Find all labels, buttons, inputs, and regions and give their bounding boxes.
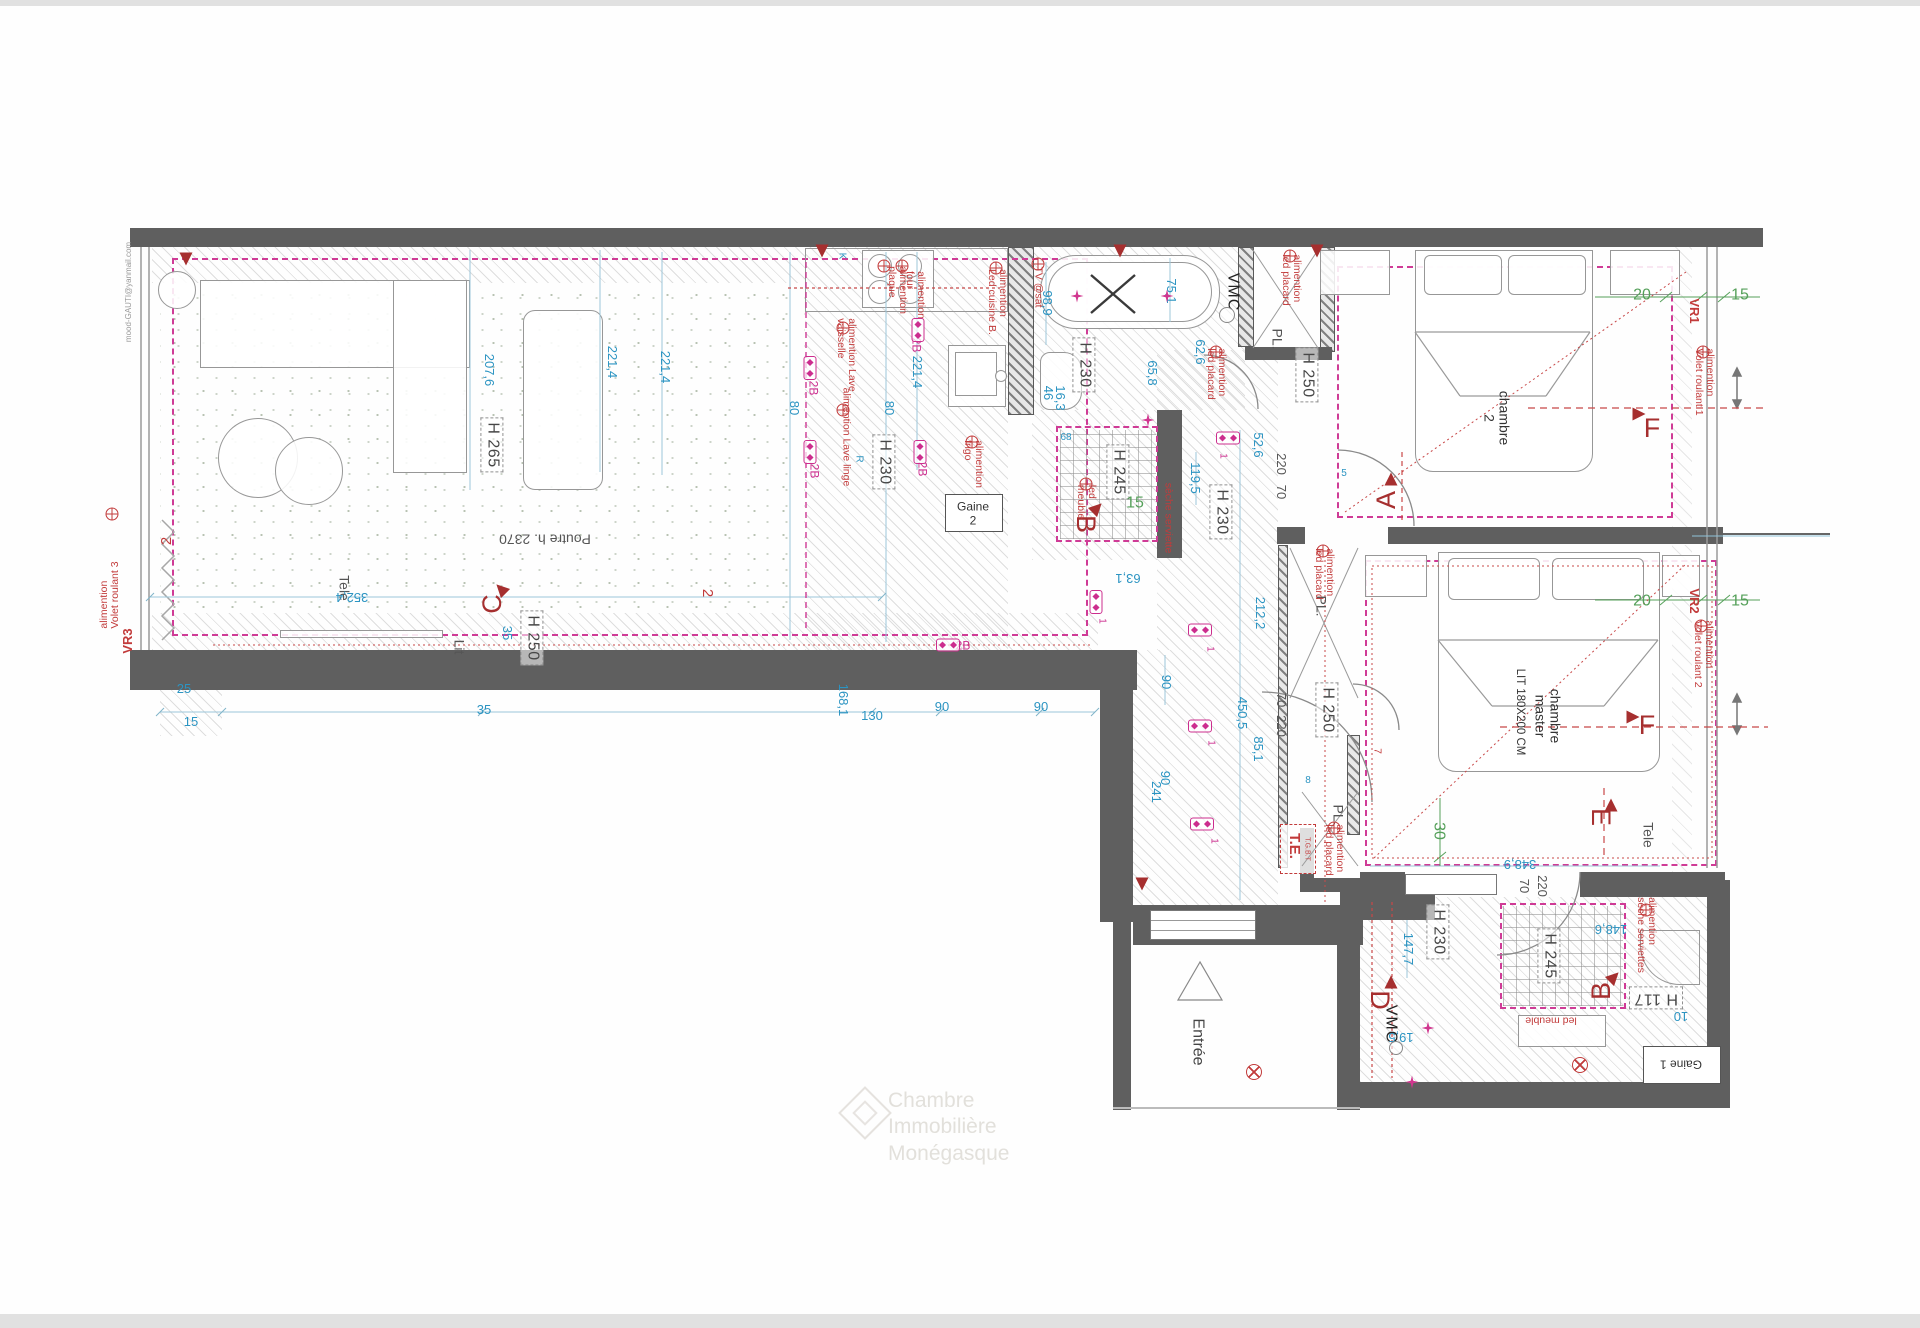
plan-label: 90 bbox=[1159, 675, 1173, 689]
wall-master-bottom-b bbox=[1580, 872, 1725, 897]
power-supply-icon bbox=[837, 404, 850, 417]
socket-icon bbox=[914, 440, 927, 464]
plan-label: 35 bbox=[477, 703, 491, 717]
coffee-table-small bbox=[275, 437, 343, 505]
plan-label: 2 bbox=[970, 515, 977, 528]
plan-label: 80 bbox=[787, 401, 801, 415]
socket-icon bbox=[912, 318, 925, 342]
socket-icon bbox=[1188, 624, 1212, 637]
plan-label: 1 bbox=[1205, 740, 1216, 746]
plan-label: H 230 bbox=[1073, 337, 1096, 392]
plan-label: chambre master bbox=[1533, 689, 1562, 743]
plan-label: alimention Led cuisine B. bbox=[986, 269, 1008, 335]
plan-label: alimention Volet roulant 3 bbox=[99, 561, 121, 628]
socket-icon bbox=[1188, 720, 1212, 733]
power-supply-icon bbox=[990, 262, 1003, 275]
power-supply-icon bbox=[1032, 258, 1045, 271]
corridor-lower-floor bbox=[1133, 650, 1278, 908]
plan-label: 1 bbox=[1204, 646, 1215, 652]
plan-label: 450,5 bbox=[1235, 697, 1249, 730]
side-table bbox=[158, 271, 196, 309]
wall-te-niche-h bbox=[1300, 878, 1362, 892]
plan-label: 15 bbox=[1126, 496, 1144, 513]
nightstand-c2-left bbox=[1320, 250, 1390, 295]
plan-label: 85,1 bbox=[1251, 736, 1265, 761]
kitchen-sink-bowl bbox=[955, 352, 997, 396]
watermark-line1: Chambre bbox=[888, 1088, 1118, 1114]
plan-label: 63,1 bbox=[1115, 571, 1140, 585]
plan-label: 148,6 bbox=[1595, 922, 1628, 936]
plan-label: 221,4 bbox=[605, 346, 619, 379]
plan-label: A bbox=[1372, 491, 1400, 509]
plan-label: H 230 bbox=[1210, 484, 1233, 539]
wall-bedroom-separation-b bbox=[1388, 527, 1723, 544]
plan-label: 1 bbox=[1217, 453, 1228, 459]
wall-bath2-bottom bbox=[1360, 1082, 1730, 1108]
watermark: Chambre Immobilière Monégasque bbox=[888, 1088, 1118, 1167]
plan-label: VR1 bbox=[1687, 298, 1701, 323]
tv-unit bbox=[280, 630, 443, 638]
vmc-outlet-icon bbox=[1219, 307, 1235, 323]
plan-label: alimention Lave linge bbox=[840, 388, 851, 487]
plan-label: R bbox=[853, 455, 864, 462]
plan-label: H 230 bbox=[873, 434, 896, 489]
plan-label: 1 bbox=[1096, 618, 1107, 624]
plan-label: H 250 bbox=[521, 610, 544, 665]
plan-label: 130 bbox=[861, 709, 883, 723]
plan-label: 52,6 bbox=[1251, 432, 1265, 457]
plan-label: 16,3 bbox=[1053, 385, 1067, 410]
plan-label: H 250 bbox=[1316, 682, 1339, 737]
window-arrow-icons bbox=[1733, 368, 1741, 734]
plan-label: VR2 bbox=[1687, 588, 1701, 613]
plan-label: 70 bbox=[1274, 693, 1288, 707]
power-supply-icon bbox=[1080, 478, 1093, 491]
watermark-logo-icon bbox=[838, 1086, 892, 1140]
plan-label: sèche serviette bbox=[1162, 483, 1173, 554]
entree-window bbox=[1150, 910, 1256, 940]
master-bottom-window bbox=[1405, 874, 1497, 895]
wall-closet2-strip bbox=[1347, 735, 1360, 835]
nightstand-m-left bbox=[1365, 555, 1427, 597]
plan-label: 352,4 bbox=[336, 590, 369, 604]
plan-label: LIT 180X200 CM bbox=[1514, 669, 1526, 756]
plan-label: T.G.B.T bbox=[1303, 837, 1310, 861]
plan-label: mood-GAUTI@yanmail.com bbox=[125, 242, 133, 342]
plan-label: 68 bbox=[1060, 433, 1071, 444]
socket-icon bbox=[804, 356, 817, 380]
wall-top bbox=[130, 228, 1763, 247]
plan-label: Gaine bbox=[957, 501, 989, 514]
plan-label: K bbox=[836, 253, 847, 260]
plan-label: 348,9 bbox=[1504, 857, 1537, 871]
plan-label: VMC bbox=[1224, 273, 1241, 312]
plan-label: PL. bbox=[1270, 328, 1285, 349]
plan-label: T.E. bbox=[1286, 833, 1302, 859]
plan-label: 20 bbox=[1633, 594, 1651, 611]
spotlight-icon bbox=[1246, 1064, 1262, 1080]
wall-corridor-left bbox=[1100, 650, 1133, 922]
plan-label: 147,7 bbox=[1401, 933, 1415, 966]
plan-label: 8 bbox=[1305, 776, 1311, 787]
plan-label: 220 bbox=[1535, 875, 1549, 897]
plan-label: H 250 bbox=[1296, 347, 1319, 402]
plan-label: Lit bbox=[452, 640, 467, 655]
watermark-line3: Monégasque bbox=[888, 1141, 1118, 1167]
plan-label: F bbox=[1639, 711, 1656, 739]
plan-label: H 117 bbox=[1629, 987, 1683, 1010]
wall-placard-bottom bbox=[1245, 347, 1332, 360]
socket-icon bbox=[1190, 818, 1214, 831]
plan-label: 90 bbox=[935, 700, 949, 714]
power-supply-icon bbox=[1284, 250, 1297, 263]
power-supply-icon bbox=[106, 508, 119, 521]
plan-label: 10 bbox=[1674, 1009, 1688, 1023]
plan-label: alimention four bbox=[904, 271, 926, 319]
plan-label: chambre 2 bbox=[1482, 391, 1511, 445]
plan-label: 5 bbox=[1341, 469, 1347, 480]
pillow-c2-left bbox=[1424, 255, 1502, 295]
plan-label: 119,5 bbox=[1188, 462, 1202, 494]
power-supply-icon bbox=[1640, 904, 1653, 917]
power-supply-icon bbox=[1695, 620, 1708, 633]
plan-label: 220 bbox=[1274, 715, 1288, 737]
spotlight-icon bbox=[1572, 1057, 1588, 1073]
plan-label: 15 bbox=[1731, 288, 1749, 305]
watermark-line2: Immobilière bbox=[888, 1114, 1118, 1140]
scan-band-bottom bbox=[0, 1314, 1920, 1328]
plan-label: 15 bbox=[1731, 594, 1749, 611]
plan-label: 241 bbox=[1149, 781, 1163, 803]
power-supply-icon bbox=[966, 436, 979, 449]
plan-label: 2B bbox=[808, 464, 821, 479]
plan-label: Entrée bbox=[1189, 1018, 1206, 1065]
plan-label: 65,8 bbox=[1145, 360, 1159, 385]
socket-icon bbox=[1090, 590, 1103, 614]
plan-label: H 230 bbox=[1427, 904, 1450, 959]
console-table bbox=[523, 310, 603, 490]
plan-label: H 245 bbox=[1107, 444, 1130, 499]
wall-entree-right bbox=[1337, 918, 1360, 1110]
wall-bottom-left bbox=[130, 650, 1137, 690]
sink-tap bbox=[995, 370, 1007, 382]
plan-label: VR3 bbox=[121, 628, 135, 653]
plan-label: 1 bbox=[1208, 838, 1219, 844]
power-supply-icon bbox=[1697, 346, 1710, 359]
wall-bedroom-separation-a bbox=[1277, 527, 1305, 544]
power-supply-icon bbox=[878, 260, 891, 273]
power-supply-icon bbox=[896, 260, 909, 273]
socket-icon bbox=[804, 440, 817, 464]
plan-label: 2 bbox=[699, 589, 715, 597]
power-supply-icon bbox=[1328, 822, 1341, 835]
plan-label: F bbox=[1644, 414, 1661, 442]
plan-label: 25 bbox=[177, 682, 191, 696]
plan-label: 207,6 bbox=[482, 354, 496, 387]
plan-label: 35 bbox=[500, 626, 514, 640]
plan-label: alimention Volet roulant 1 bbox=[1693, 348, 1715, 415]
pillow-m-right bbox=[1552, 558, 1644, 600]
wall-entree-left bbox=[1113, 920, 1131, 1110]
pillow-c2-right bbox=[1508, 255, 1586, 295]
plan-label: 212,2 bbox=[1253, 597, 1267, 630]
plan-label: 30 bbox=[1430, 822, 1447, 840]
plan-label: 2 bbox=[159, 537, 175, 545]
plan-label: 20 bbox=[1633, 288, 1651, 305]
bathtub-inner bbox=[1048, 262, 1212, 322]
wall-master-bottom-a bbox=[1360, 872, 1405, 897]
plan-label: 80 bbox=[882, 401, 896, 415]
plan-label: Gaine 1 bbox=[1660, 1058, 1702, 1071]
plan-label: led meuble bbox=[1525, 1014, 1576, 1025]
plan-label: 90 bbox=[1034, 700, 1048, 714]
plan-label: H 265 bbox=[481, 417, 504, 472]
scan-band-top bbox=[0, 0, 1920, 6]
plan-label: 221,4 bbox=[910, 356, 924, 389]
plan-label: 15 bbox=[184, 715, 198, 729]
power-supply-icon bbox=[837, 322, 850, 335]
plan-label: H 245 bbox=[1538, 928, 1561, 983]
plan-label: 75,1 bbox=[1164, 278, 1178, 303]
pillow-m-left bbox=[1448, 558, 1540, 600]
plan-label: 2B bbox=[807, 381, 820, 396]
socket-icon bbox=[1216, 432, 1240, 445]
plan-label: 70 bbox=[1517, 879, 1531, 893]
plan-label: 70 bbox=[1274, 485, 1288, 499]
power-supply-icon bbox=[1317, 545, 1330, 558]
floor-plan-canvas: Chambre Immobilière Monégasque H 265H 23… bbox=[0, 0, 1920, 1328]
socket-icon bbox=[936, 639, 960, 652]
plan-label: 7 bbox=[1371, 748, 1382, 754]
sofa-chaise bbox=[393, 280, 467, 473]
plan-label: Tele bbox=[1641, 822, 1656, 848]
plan-label: 220 bbox=[1274, 453, 1288, 475]
power-supply-icon bbox=[1210, 346, 1223, 359]
plan-label: 221,4 bbox=[658, 351, 672, 384]
plan-label: D bbox=[1366, 990, 1394, 1010]
plan-label: 168,1 bbox=[836, 684, 850, 717]
plan-label: Poutre h. 2370 bbox=[499, 532, 591, 547]
entree-triangle-icon bbox=[1178, 962, 1222, 1000]
vmc-outlet-icon bbox=[1389, 1041, 1403, 1055]
plan-label: TV @sat bbox=[1032, 266, 1043, 307]
plan-label: B bbox=[1587, 982, 1615, 1000]
